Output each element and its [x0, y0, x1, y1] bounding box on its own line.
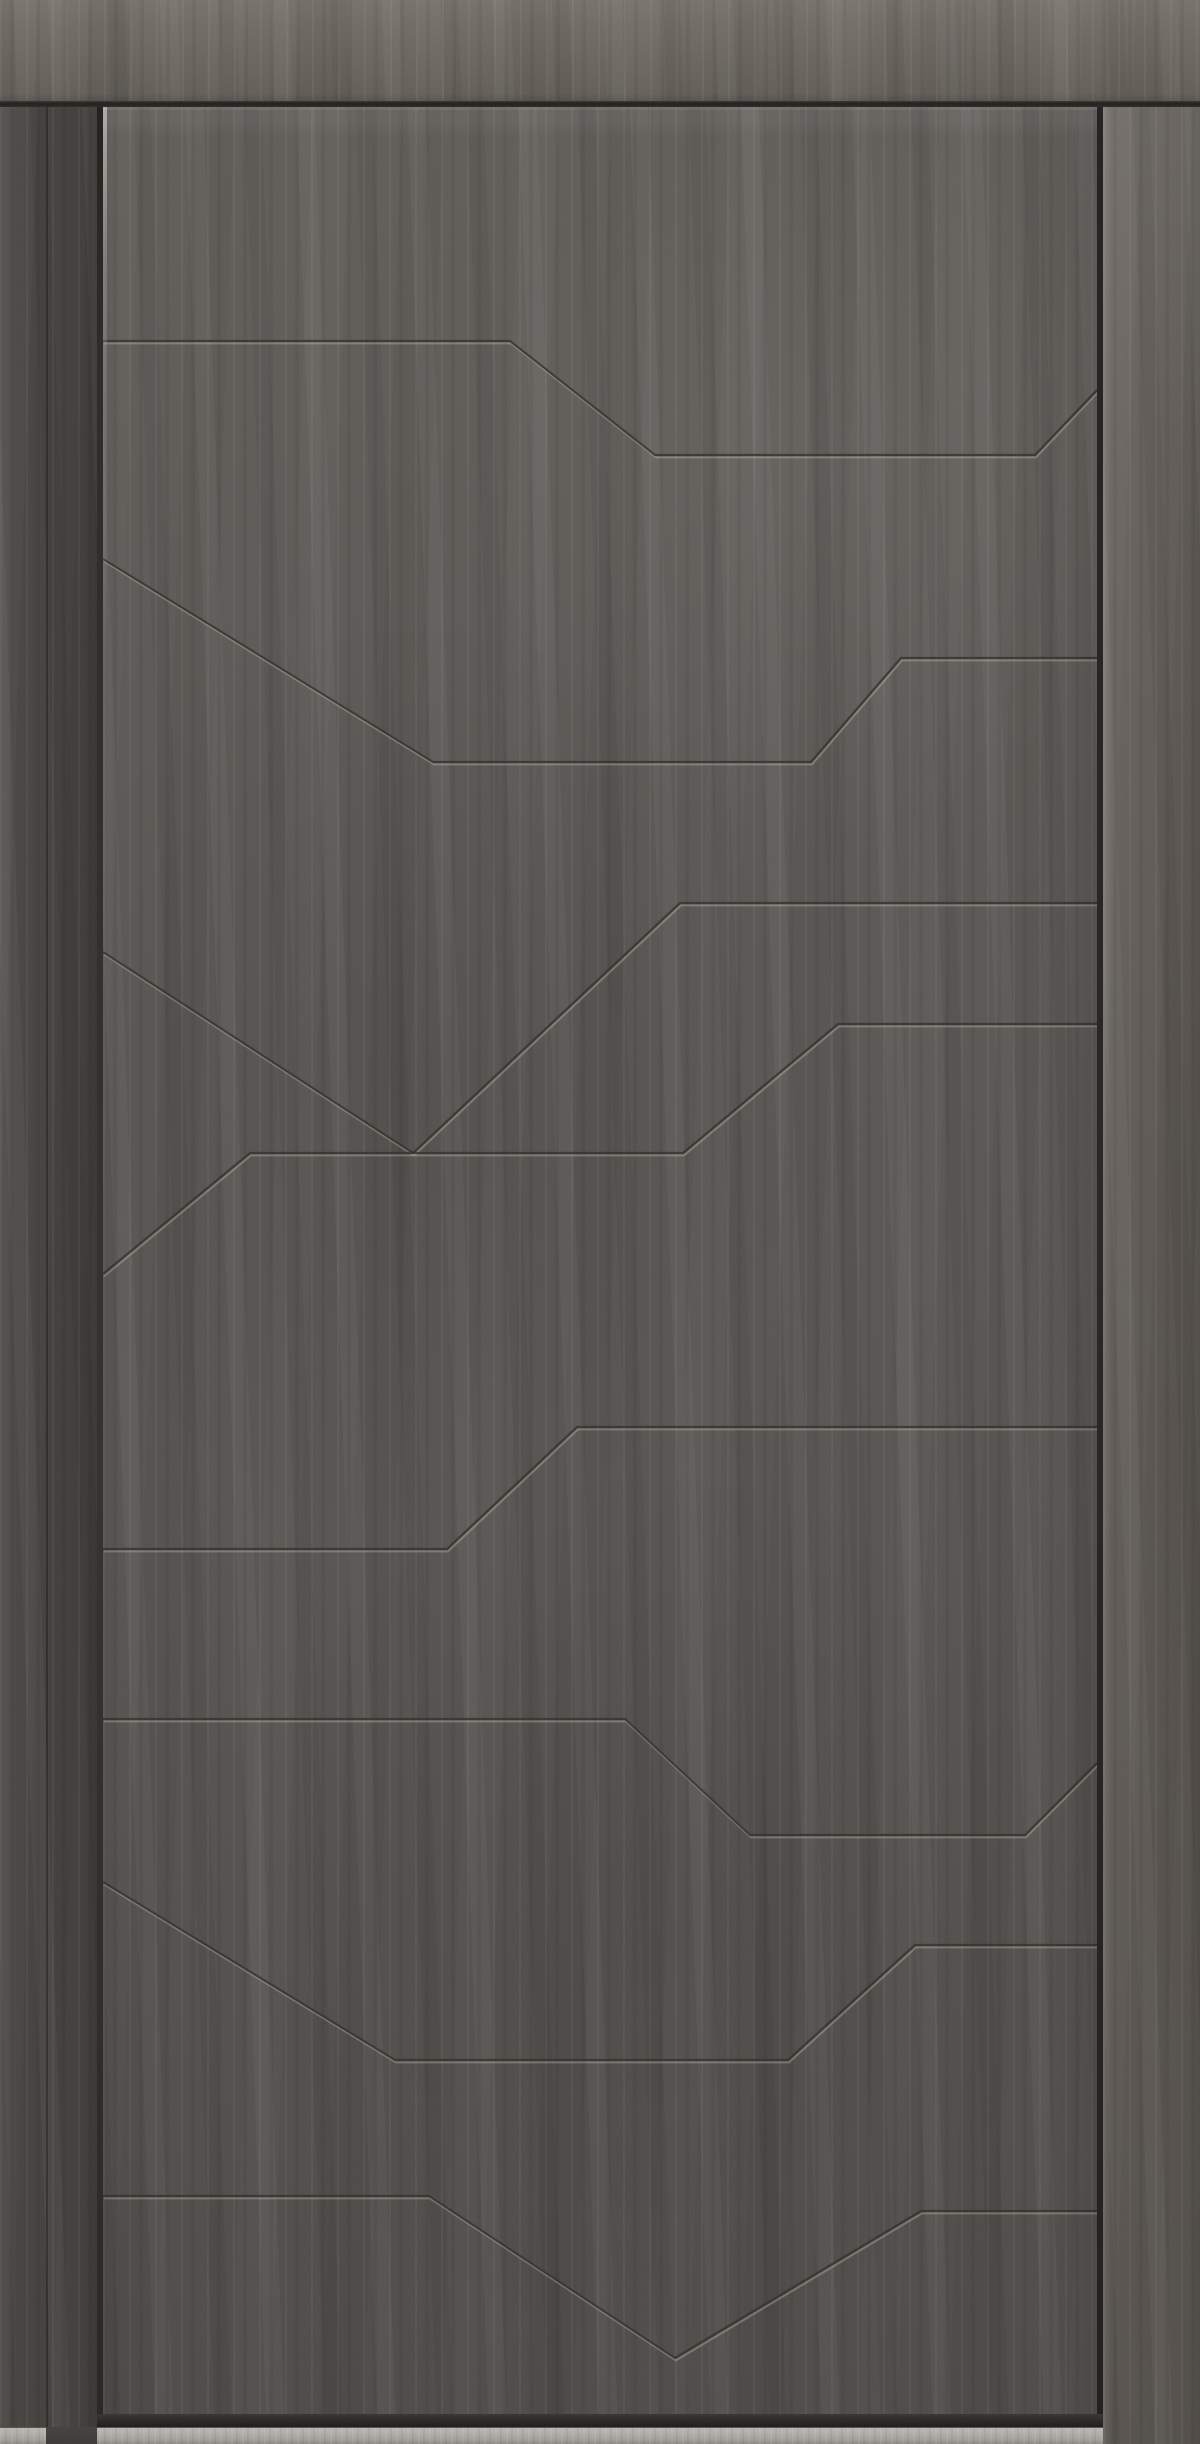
- door-frame-jamb-left: [0, 107, 97, 2427]
- door-gap-right: [1097, 107, 1103, 2414]
- door-bottom-shadow: [97, 2414, 1103, 2427]
- door-sill: [0, 2427, 1103, 2444]
- door-leaf: [103, 107, 1097, 2414]
- door-frame-header: [0, 0, 1200, 101]
- door-frame-jamb-right: [1103, 107, 1200, 2444]
- groove-9: [103, 2196, 1097, 2358]
- groove-7: [103, 1719, 1097, 1835]
- groove-1: [103, 341, 1097, 455]
- entrance-door-photo: [0, 0, 1200, 2444]
- groove-8: [103, 1882, 1097, 2060]
- groove-6: [103, 1427, 1097, 1549]
- groove-4: [413, 903, 1097, 1153]
- groove-pattern: [103, 107, 1097, 2414]
- jamb-foot: [46, 2427, 97, 2444]
- groove-3: [103, 952, 413, 1153]
- groove-5: [103, 1024, 1097, 1274]
- jamb-casing-seam: [46, 107, 48, 2427]
